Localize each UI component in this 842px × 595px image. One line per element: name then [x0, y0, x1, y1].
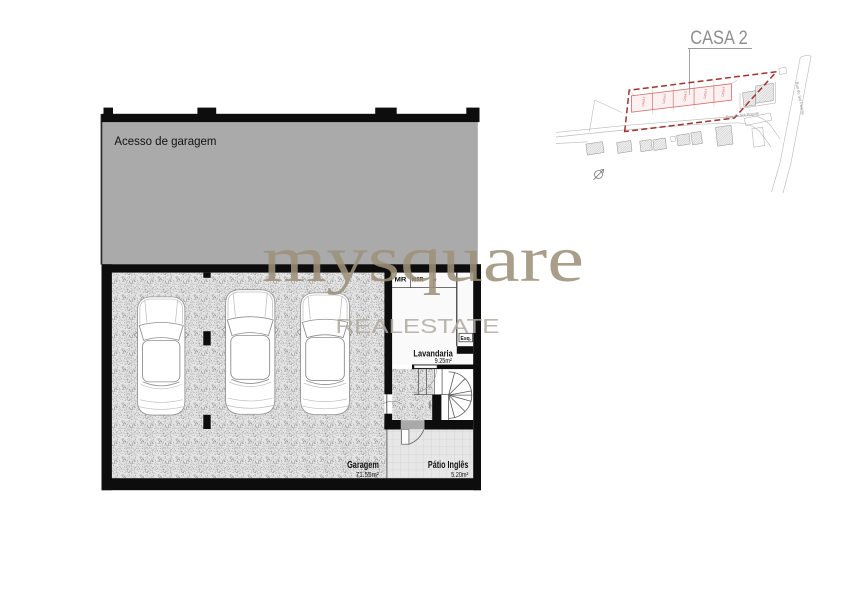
svg-text:Rua do Sol Poente: Rua do Sol Poente [726, 110, 761, 119]
svg-text:9.25m²: 9.25m² [435, 358, 453, 365]
svg-text:Pátio Inglês: Pátio Inglês [428, 460, 469, 471]
svg-text:mysquare: mysquare [262, 223, 584, 296]
svg-text:Rua do Sol Poente: Rua do Sol Poente [795, 81, 806, 116]
svg-text:71.55m²: 71.55m² [356, 470, 380, 479]
svg-text:Acesso de garagem: Acesso de garagem [114, 134, 216, 148]
svg-text:5.20m²: 5.20m² [451, 470, 469, 479]
svg-text:REALESTATE: REALESTATE [336, 316, 500, 338]
svg-text:Garagem: Garagem [347, 460, 379, 471]
svg-text:CASA 2: CASA 2 [690, 27, 748, 49]
